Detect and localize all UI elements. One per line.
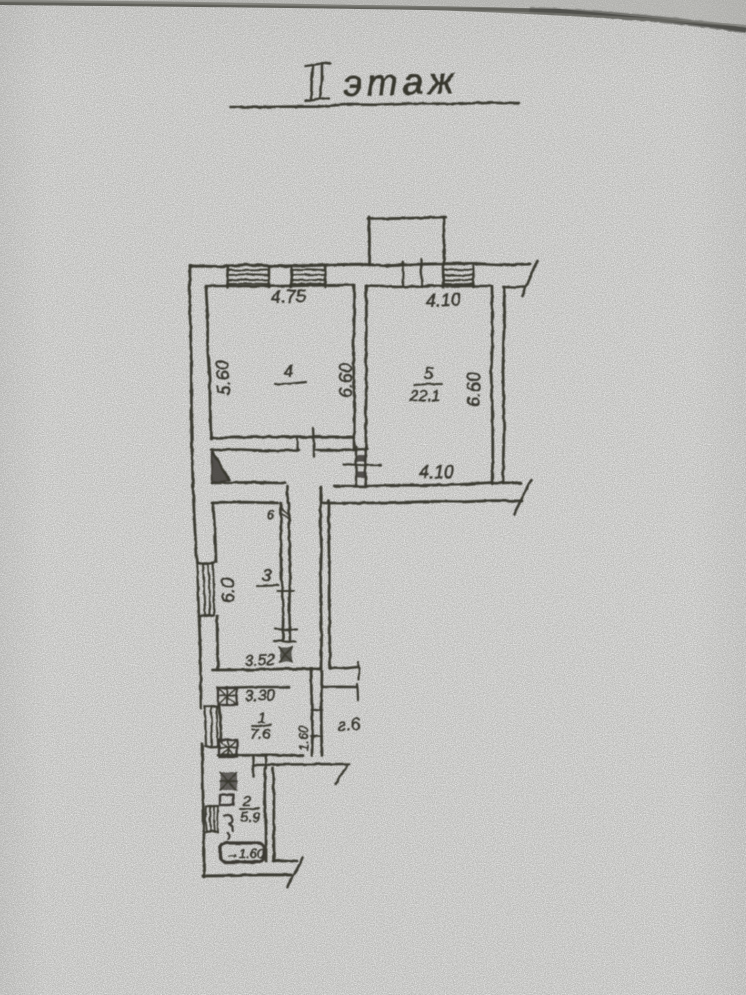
- svg-text:г.6: г.6: [337, 714, 361, 735]
- svg-text:→1.60: →1.60: [226, 846, 265, 861]
- svg-text:1: 1: [258, 711, 266, 727]
- svg-text:6: 6: [267, 507, 275, 522]
- svg-text:эmаж: эmаж: [343, 60, 459, 104]
- svg-text:4.10: 4.10: [425, 289, 461, 311]
- svg-text:7.6: 7.6: [250, 727, 271, 743]
- svg-text:5.60: 5.60: [212, 360, 234, 396]
- svg-text:4.10: 4.10: [419, 462, 454, 482]
- svg-text:22.1: 22.1: [409, 388, 440, 405]
- svg-text:5: 5: [424, 364, 434, 383]
- svg-text:4: 4: [283, 362, 293, 381]
- svg-text:6.0: 6.0: [218, 578, 238, 603]
- svg-text:6.60: 6.60: [336, 363, 356, 398]
- svg-text:3.52: 3.52: [244, 651, 275, 670]
- svg-text:6.60: 6.60: [464, 372, 484, 407]
- svg-text:5.9: 5.9: [240, 810, 260, 826]
- svg-text:4.75: 4.75: [270, 286, 307, 307]
- svg-text:3.30: 3.30: [245, 687, 276, 705]
- svg-text:3: 3: [262, 566, 272, 585]
- svg-text:2: 2: [242, 794, 251, 810]
- svg-text:1.60: 1.60: [296, 725, 311, 751]
